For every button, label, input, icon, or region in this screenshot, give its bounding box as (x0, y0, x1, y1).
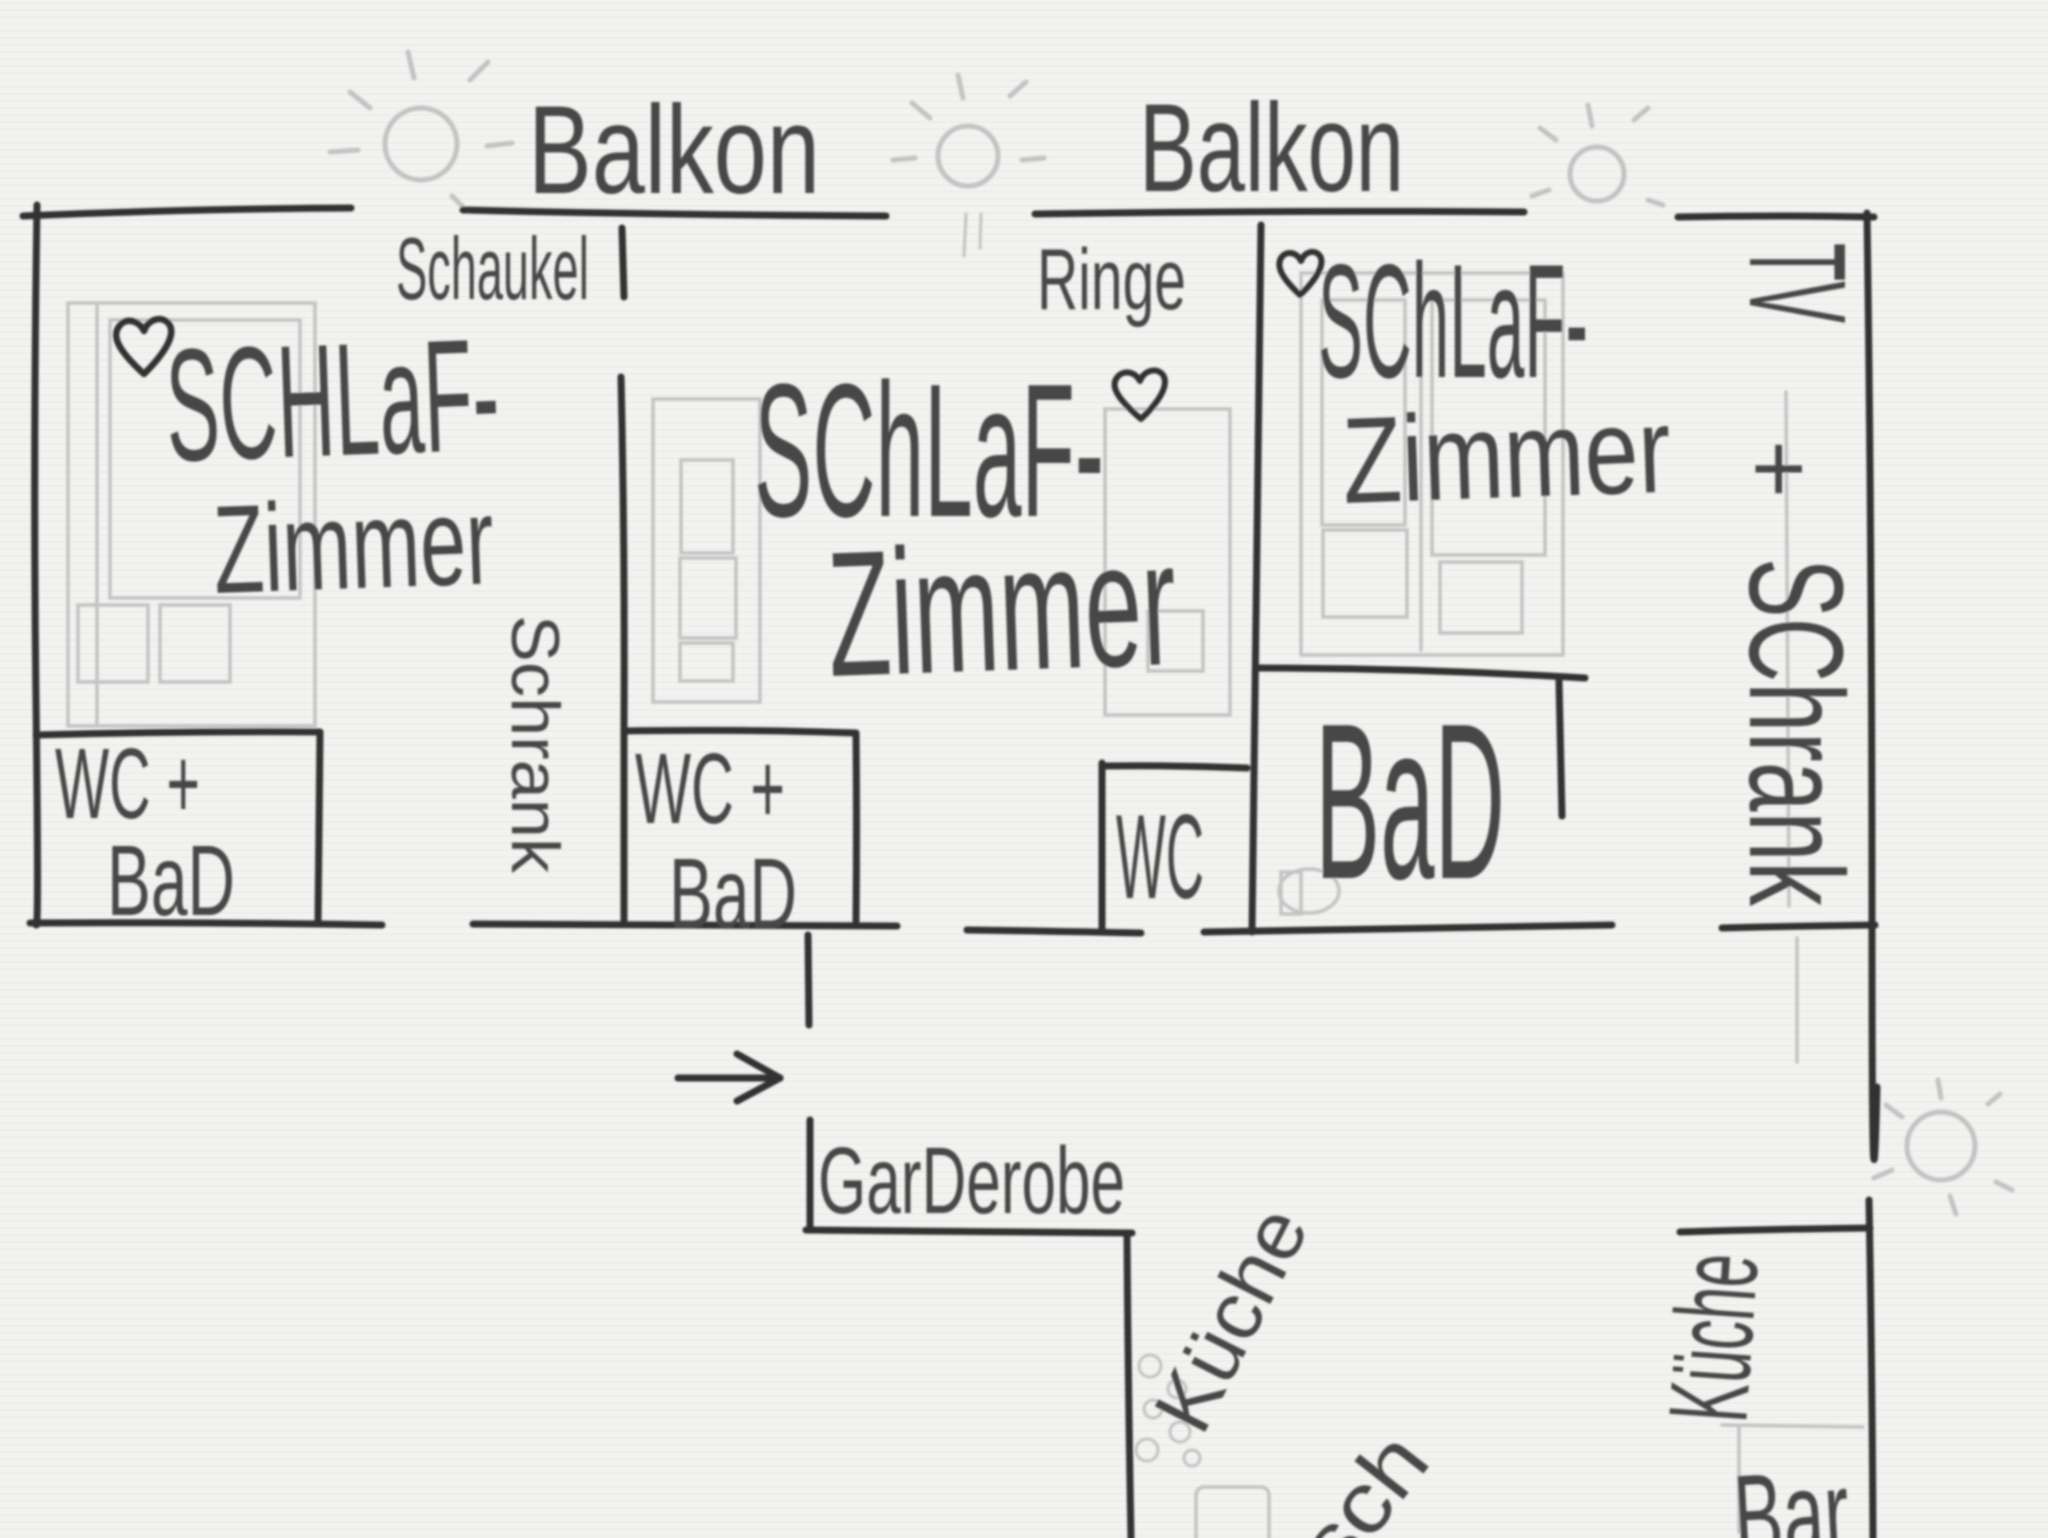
svg-text:Bar: Bar (1730, 1444, 1852, 1538)
svg-text:Schaukel: Schaukel (396, 219, 589, 318)
svg-text:Zimmer: Zimmer (824, 503, 1179, 714)
svg-text:BaD: BaD (669, 838, 797, 950)
svg-text:Balkon: Balkon (1139, 79, 1404, 218)
svg-text:Schrank: Schrank (497, 615, 573, 874)
svg-text:BaD: BaD (107, 825, 235, 937)
svg-text:Küche: Küche (1645, 1249, 1781, 1425)
svg-text:+: + (1726, 440, 1832, 498)
svg-text:TV: TV (1720, 243, 1874, 323)
svg-text:WC +: WC + (635, 733, 785, 845)
svg-text:WC +: WC + (55, 728, 200, 840)
svg-text:WC: WC (1116, 790, 1204, 924)
svg-text:Zimmer: Zimmer (211, 471, 496, 620)
svg-text:SCHLaF-: SCHLaF- (163, 304, 502, 495)
svg-text:Zimmer: Zimmer (1340, 382, 1673, 529)
svg-text:Ringe: Ringe (1037, 232, 1186, 328)
svg-text:BaD: BaD (1315, 678, 1505, 926)
svg-text:GarDerobe: GarDerobe (818, 1128, 1125, 1234)
svg-text:Balkon: Balkon (528, 81, 820, 220)
svg-text:SChrank: SChrank (1721, 558, 1870, 907)
